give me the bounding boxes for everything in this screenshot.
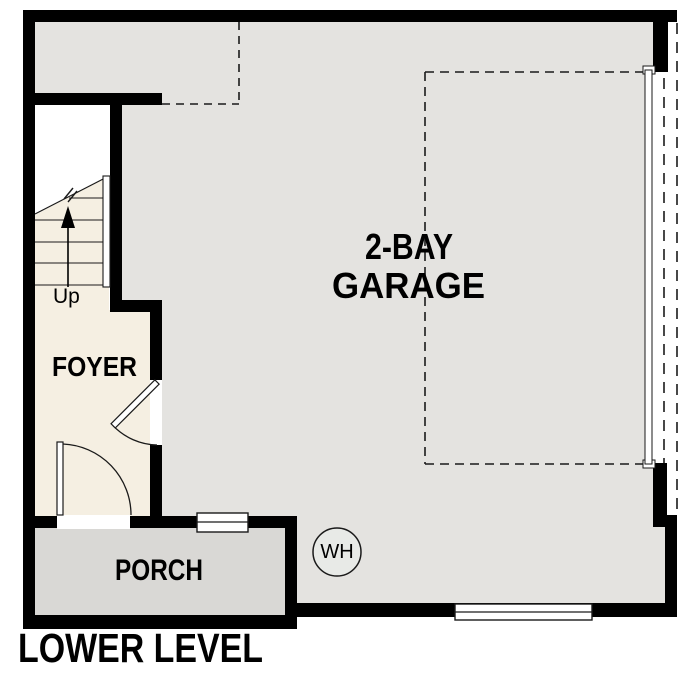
stair-stringer [103,176,110,287]
plan-title: LOWER LEVEL [18,625,263,671]
garage-door-panel [645,70,652,464]
wall-porch-top-left [23,516,57,528]
wall-top [23,10,677,22]
porch-label: PORCH [115,554,203,587]
wall-right-lower [665,515,677,617]
water-heater: WH [313,528,361,576]
window-garage-south [455,604,592,620]
stairs-up-label: Up [53,285,80,308]
wall-stair-top [23,93,162,105]
water-heater-label: WH [320,541,353,563]
door-leaf [57,442,63,515]
garage-label-line2: GARAGE [332,265,485,306]
foyer-label: FOYER [52,351,137,382]
garage-door [643,66,655,468]
wall-foyer-right-lower [150,445,162,528]
foyer-floor [35,310,151,518]
wall-stair-garage [110,105,122,312]
wall-top-right-corner [653,10,668,72]
entry-door-opening [57,515,130,529]
floor-plan: WH 2-BAY GARAGE FOYER PORCH Up LOWER LEV… [0,0,687,687]
wall-foyer-jog [110,300,162,312]
wall-foyer-right-upper [150,312,162,380]
window-porch [197,513,248,532]
garage-label-line1: 2-BAY [365,226,453,267]
